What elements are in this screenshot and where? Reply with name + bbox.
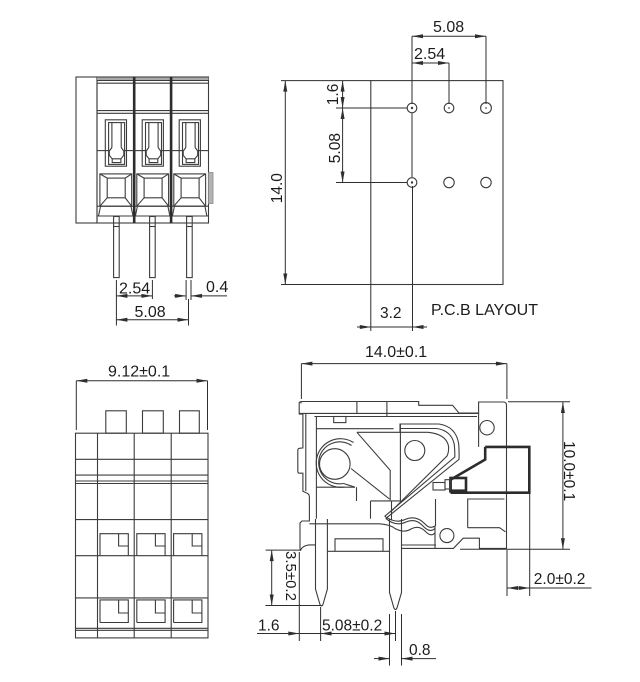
svg-text:P.C.B LAYOUT: P.C.B LAYOUT — [431, 302, 538, 319]
svg-text:2.0±0.2: 2.0±0.2 — [534, 571, 586, 588]
svg-text:2.54: 2.54 — [414, 46, 445, 63]
svg-text:3.2: 3.2 — [380, 305, 402, 322]
svg-text:5.08: 5.08 — [135, 304, 166, 321]
svg-text:2.54: 2.54 — [119, 281, 150, 298]
svg-text:5.08: 5.08 — [433, 19, 464, 36]
svg-text:10.0±0.1: 10.0±0.1 — [560, 441, 577, 501]
svg-text:5.08: 5.08 — [327, 133, 344, 163]
svg-text:0.4: 0.4 — [206, 279, 228, 296]
svg-text:1.6: 1.6 — [325, 84, 342, 106]
svg-text:14.0: 14.0 — [269, 173, 286, 204]
svg-text:14.0±0.1: 14.0±0.1 — [365, 344, 427, 361]
svg-text:3.5±0.2: 3.5±0.2 — [282, 551, 299, 601]
svg-text:1.6: 1.6 — [258, 618, 280, 635]
svg-text:0.8: 0.8 — [409, 642, 431, 659]
svg-text:9.12±0.1: 9.12±0.1 — [108, 364, 170, 381]
svg-text:5.08±0.2: 5.08±0.2 — [322, 618, 382, 635]
